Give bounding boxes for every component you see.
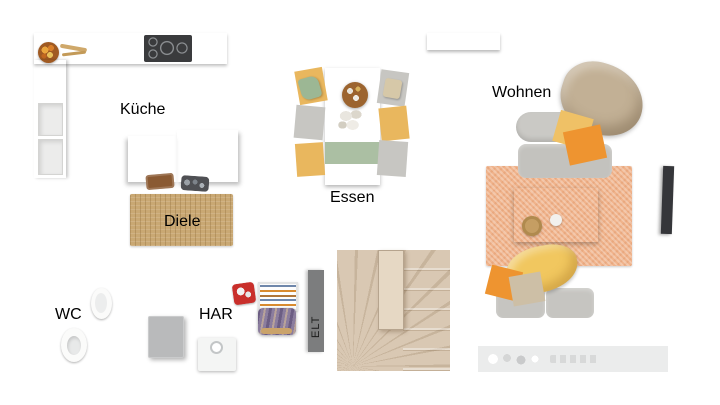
- french-door-dining: [305, 14, 397, 34]
- terrace-door-lower-right: [685, 243, 702, 309]
- entrance-door: [15, 181, 35, 243]
- french-door-living: [527, 14, 617, 34]
- room-label-har: HAR: [199, 306, 237, 324]
- floor-plan: Küche Diele Essen Wohnen WC HAR ELT: [0, 0, 720, 405]
- room-label-elt: ELT: [310, 310, 322, 338]
- room-label-kueche: Küche: [120, 101, 168, 119]
- window-wc-left: [15, 265, 35, 323]
- room-label-essen: Essen: [330, 189, 376, 207]
- room-label-wc: WC: [55, 306, 85, 324]
- terrace-door-upper-right: [685, 93, 702, 159]
- window-kitchen-top: [68, 14, 140, 34]
- window-har-bottom: [247, 370, 319, 387]
- room-label-diele: Diele: [164, 213, 202, 231]
- outer-wall-bottom: [20, 371, 700, 386]
- outer-wall-right: [686, 18, 700, 386]
- window-kitchen-left: [15, 91, 35, 149]
- room-label-wohnen: Wohnen: [492, 84, 550, 102]
